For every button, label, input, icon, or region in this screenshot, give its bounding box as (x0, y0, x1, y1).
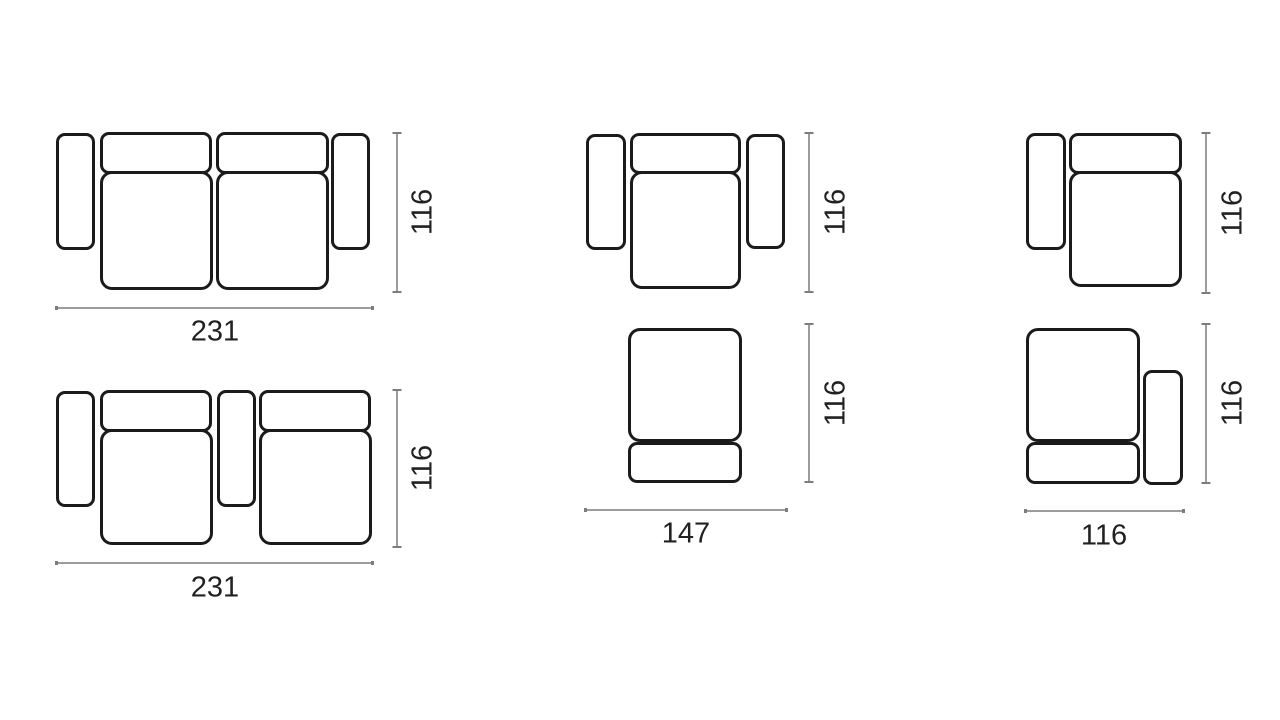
seat-outline (1026, 328, 1140, 442)
seat-outline (630, 171, 741, 289)
height-dimension-label: 116 (409, 189, 438, 235)
height-dimension-label: 116 (822, 189, 851, 235)
right-backrest-outline (216, 132, 329, 174)
width-dimension-label: 147 (662, 520, 710, 549)
right-armrest-outline (1143, 370, 1183, 485)
seat-outline (1069, 171, 1182, 287)
width-dimension-label: 231 (191, 574, 239, 603)
height-dimension-line (396, 390, 398, 547)
left-backrest-outline (100, 390, 212, 432)
height-dimension-line (396, 133, 398, 292)
front-cushion-outline (1026, 442, 1140, 484)
width-dimension-line (585, 509, 787, 511)
right-armrest-outline (331, 133, 370, 250)
left-seat-outline (100, 171, 213, 290)
left-armrest-outline (1026, 133, 1066, 250)
right-backrest-outline (259, 390, 371, 432)
backrest-outline (630, 133, 741, 174)
width-dimension-label: 116 (1081, 522, 1127, 551)
width-dimension-label: 231 (191, 318, 239, 347)
right-armrest-outline (746, 134, 785, 249)
height-dimension-line (1205, 324, 1207, 483)
front-cushion-outline (628, 442, 742, 483)
width-dimension-line (56, 562, 373, 564)
left-armrest-outline (56, 133, 95, 250)
backrest-outline (1069, 133, 1182, 174)
height-dimension-label: 116 (822, 380, 851, 426)
width-dimension-line (1025, 510, 1184, 512)
center-console-outline (217, 390, 256, 507)
sofa-dimension-diagram: 231 116 231 116 116 147 116 (0, 0, 1280, 720)
left-armrest-outline (56, 391, 95, 507)
height-dimension-label: 116 (409, 445, 438, 491)
height-dimension-label: 116 (1219, 190, 1248, 236)
height-dimension-line (808, 324, 810, 482)
left-seat-outline (100, 429, 213, 545)
height-dimension-line (1205, 133, 1207, 293)
height-dimension-line (808, 133, 810, 292)
right-seat-outline (216, 171, 329, 290)
width-dimension-line (56, 307, 373, 309)
seat-outline (628, 328, 742, 442)
left-armrest-outline (586, 134, 626, 250)
right-seat-outline (259, 429, 372, 545)
height-dimension-label: 116 (1219, 380, 1248, 426)
left-backrest-outline (100, 132, 212, 174)
